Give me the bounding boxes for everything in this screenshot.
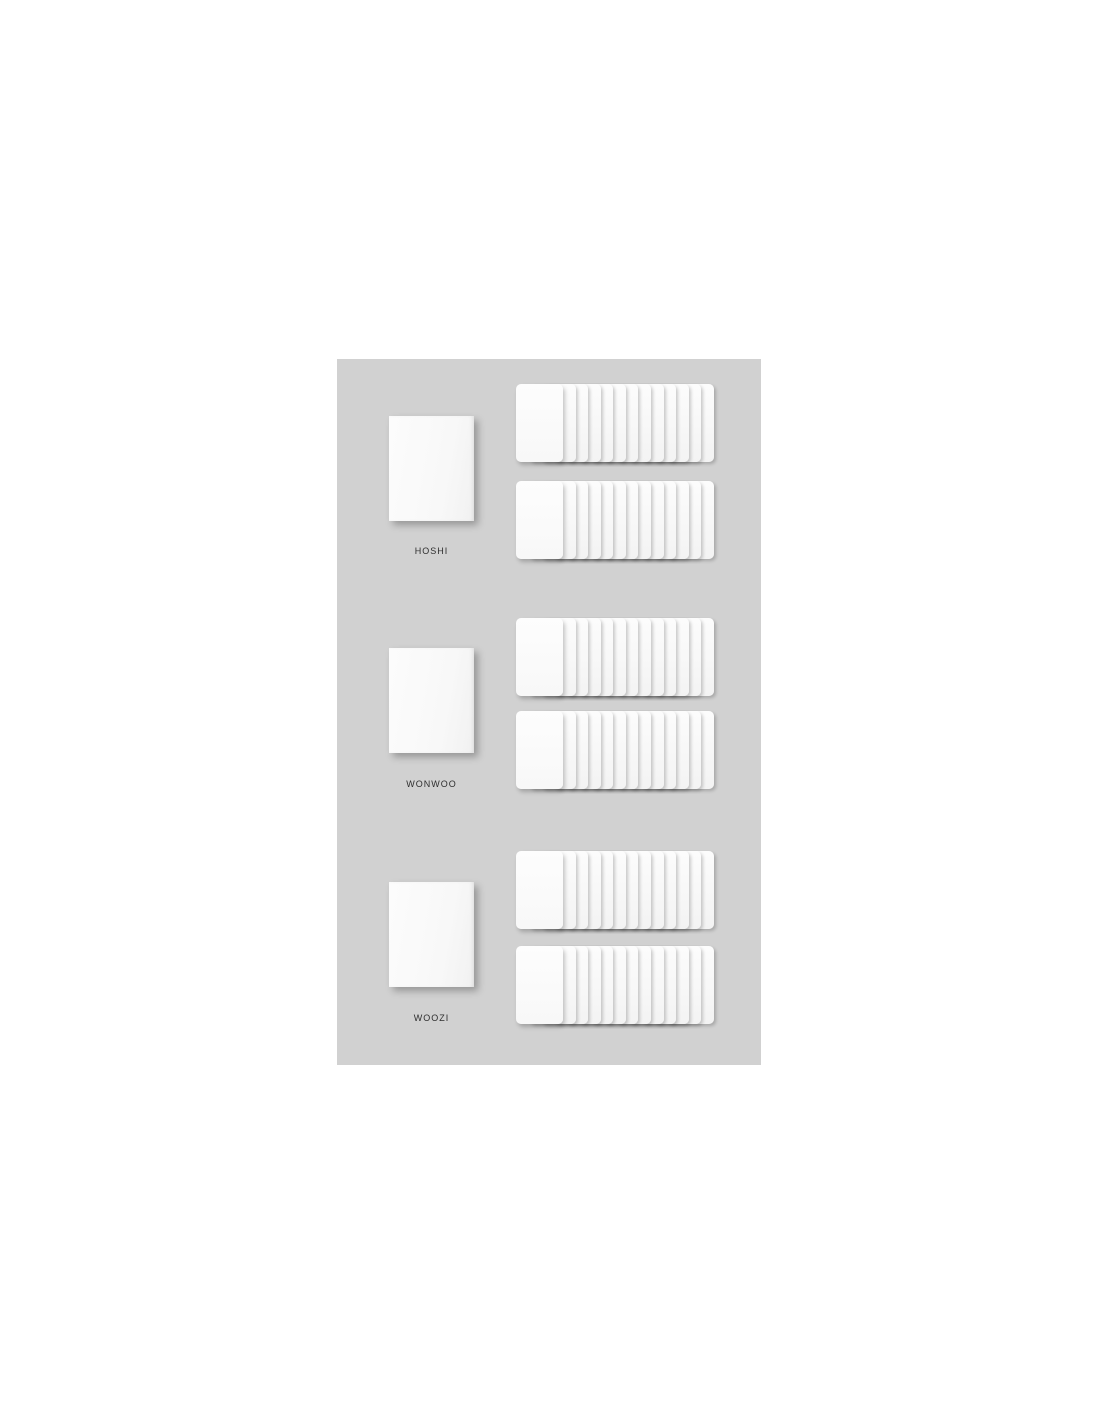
photocard xyxy=(667,851,714,929)
photocard xyxy=(566,481,613,559)
photocard xyxy=(529,481,576,559)
photocard xyxy=(566,711,613,789)
photocard xyxy=(642,481,689,559)
photocard xyxy=(554,384,601,462)
photocard xyxy=(591,384,638,462)
photocard xyxy=(566,851,613,929)
mini-poster-card-woozi xyxy=(389,882,474,987)
photocard xyxy=(667,384,714,462)
photocard xyxy=(554,481,601,559)
photocard xyxy=(617,946,664,1024)
member-name-label: HOSHI xyxy=(364,546,499,557)
photocard xyxy=(579,946,626,1024)
photocard xyxy=(617,851,664,929)
photocard xyxy=(604,384,651,462)
photocard-fan-row xyxy=(516,481,714,559)
photocard xyxy=(541,384,588,462)
mini-poster-card-wonwoo xyxy=(389,648,474,753)
photocard xyxy=(554,711,601,789)
photocard xyxy=(579,618,626,696)
photocard xyxy=(654,481,701,559)
photocard xyxy=(604,481,651,559)
photocard xyxy=(529,618,576,696)
photocard xyxy=(554,618,601,696)
photocard xyxy=(541,618,588,696)
photocard xyxy=(629,384,676,462)
photocard xyxy=(591,481,638,559)
photocard xyxy=(541,481,588,559)
photocard xyxy=(617,711,664,789)
photocard xyxy=(591,618,638,696)
photocard xyxy=(617,618,664,696)
photocard xyxy=(579,481,626,559)
member-group-hoshi: HOSHI xyxy=(337,359,761,1065)
photocard-fan-row xyxy=(516,946,714,1024)
photocard xyxy=(516,851,563,929)
photocard xyxy=(654,711,701,789)
photocard xyxy=(667,481,714,559)
photocard xyxy=(604,851,651,929)
photocard xyxy=(566,946,613,1024)
photocard xyxy=(579,851,626,929)
member-group-woozi: WOOZI xyxy=(337,359,761,1065)
mini-poster-card-hoshi xyxy=(389,416,474,521)
product-mockup-panel: HOSHI WONWOO WOOZI xyxy=(337,359,761,1065)
photocard xyxy=(516,946,563,1024)
photocard xyxy=(629,711,676,789)
photocard xyxy=(654,384,701,462)
photocard xyxy=(554,946,601,1024)
photocard xyxy=(591,851,638,929)
photocard xyxy=(629,946,676,1024)
photocard xyxy=(591,946,638,1024)
photocard xyxy=(566,384,613,462)
photocard xyxy=(566,618,613,696)
photocard-fan-row xyxy=(516,618,714,696)
photocard xyxy=(529,946,576,1024)
photocard xyxy=(604,618,651,696)
photocard xyxy=(529,711,576,789)
photocard xyxy=(617,384,664,462)
photocard xyxy=(516,711,563,789)
photocard xyxy=(654,851,701,929)
photocard-fan-row xyxy=(516,384,714,462)
member-name-label: WONWOO xyxy=(364,779,499,790)
member-name-label: WOOZI xyxy=(364,1013,499,1024)
photocard xyxy=(642,711,689,789)
product-image-page: HOSHI WONWOO WOOZI xyxy=(0,0,1100,1422)
photocard xyxy=(529,851,576,929)
photocard xyxy=(667,946,714,1024)
photocard xyxy=(516,481,563,559)
photocard xyxy=(579,384,626,462)
photocard xyxy=(541,711,588,789)
photocard xyxy=(604,946,651,1024)
photocard xyxy=(642,384,689,462)
photocard xyxy=(654,618,701,696)
photocard xyxy=(591,711,638,789)
photocard xyxy=(629,481,676,559)
photocard xyxy=(667,711,714,789)
photocard xyxy=(642,946,689,1024)
photocard xyxy=(554,851,601,929)
photocard xyxy=(541,851,588,929)
photocard xyxy=(642,851,689,929)
photocard xyxy=(642,618,689,696)
member-group-wonwoo: WONWOO xyxy=(337,359,761,1065)
photocard xyxy=(529,384,576,462)
photocard xyxy=(579,711,626,789)
photocard xyxy=(516,384,563,462)
photocard xyxy=(629,618,676,696)
photocard xyxy=(629,851,676,929)
photocard xyxy=(541,946,588,1024)
photocard xyxy=(604,711,651,789)
photocard-fan-row xyxy=(516,711,714,789)
photocard-fan-row xyxy=(516,851,714,929)
photocard xyxy=(516,618,563,696)
photocard xyxy=(667,618,714,696)
photocard xyxy=(654,946,701,1024)
photocard xyxy=(617,481,664,559)
